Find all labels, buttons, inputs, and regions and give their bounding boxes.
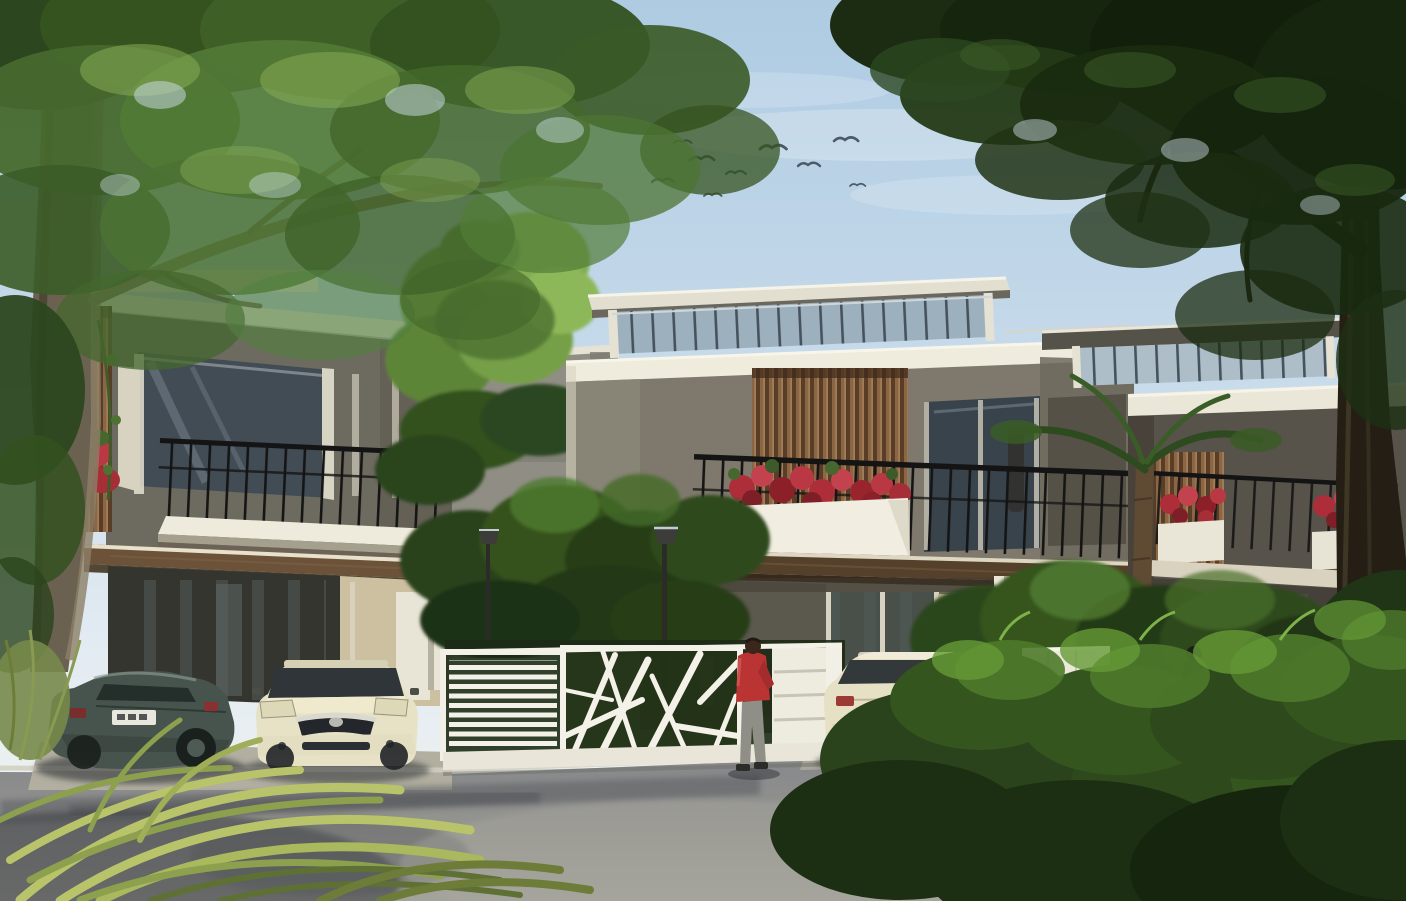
entrance-gate <box>443 640 845 774</box>
render-canvas <box>0 0 1406 901</box>
villa-rendering <box>0 0 1406 901</box>
gate-organic-panel <box>563 648 740 756</box>
gate-louver-panel <box>443 652 563 758</box>
